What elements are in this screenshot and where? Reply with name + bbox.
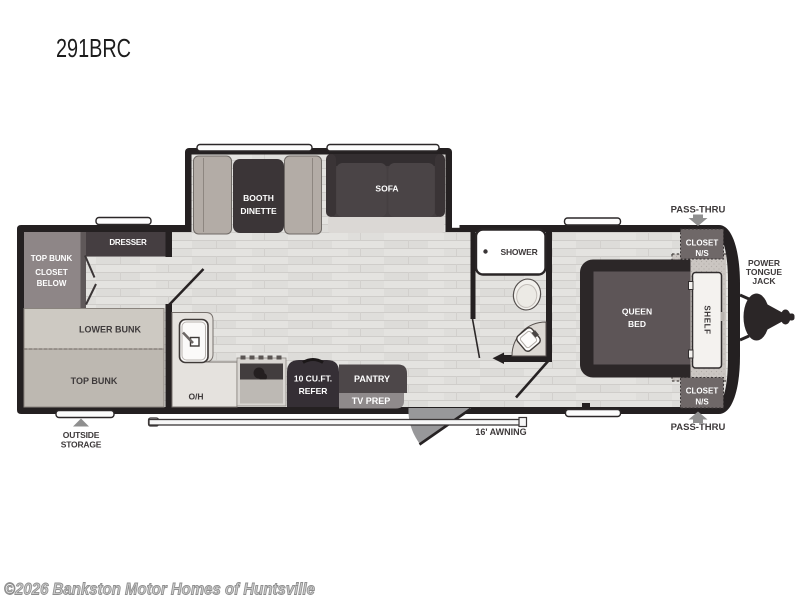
svg-text:PASS-THRU: PASS-THRU [671,205,726,216]
svg-text:16' AWNING: 16' AWNING [475,427,526,437]
svg-text:BOOTH: BOOTH [243,193,274,203]
svg-text:N/S: N/S [695,398,709,407]
svg-text:DRESSER: DRESSER [109,238,147,247]
svg-text:SHELF: SHELF [703,305,712,334]
svg-text:TOP BUNK: TOP BUNK [71,376,118,386]
svg-text:CLOSET: CLOSET [35,268,68,277]
svg-text:CLOSET: CLOSET [686,387,719,396]
svg-text:DINETTE: DINETTE [240,206,277,216]
svg-text:291BRC: 291BRC [56,33,131,63]
svg-text:CLOSET: CLOSET [686,239,719,248]
svg-text:O/H: O/H [188,392,203,402]
svg-text:N/S: N/S [695,249,709,258]
svg-text:TOP BUNK: TOP BUNK [31,254,73,263]
svg-text:QUEEN: QUEEN [622,307,652,317]
svg-text:TV PREP: TV PREP [352,396,391,406]
svg-text:JACK: JACK [752,276,776,286]
svg-text:BELOW: BELOW [37,279,67,288]
svg-text:SHOWER: SHOWER [500,247,537,257]
svg-text:OUTSIDE: OUTSIDE [63,430,100,440]
svg-text:©2026 Bankston Motor Homes of: ©2026 Bankston Motor Homes of Huntsville [4,580,315,599]
svg-text:REFER: REFER [299,386,328,396]
svg-text:SOFA: SOFA [375,184,398,194]
svg-text:PANTRY: PANTRY [354,374,390,384]
svg-text:STORAGE: STORAGE [61,440,102,450]
svg-text:LOWER BUNK: LOWER BUNK [79,325,141,335]
svg-text:10 CU.FT.: 10 CU.FT. [294,374,332,384]
svg-text:BED: BED [628,319,646,329]
svg-text:PASS-THRU: PASS-THRU [671,422,726,433]
